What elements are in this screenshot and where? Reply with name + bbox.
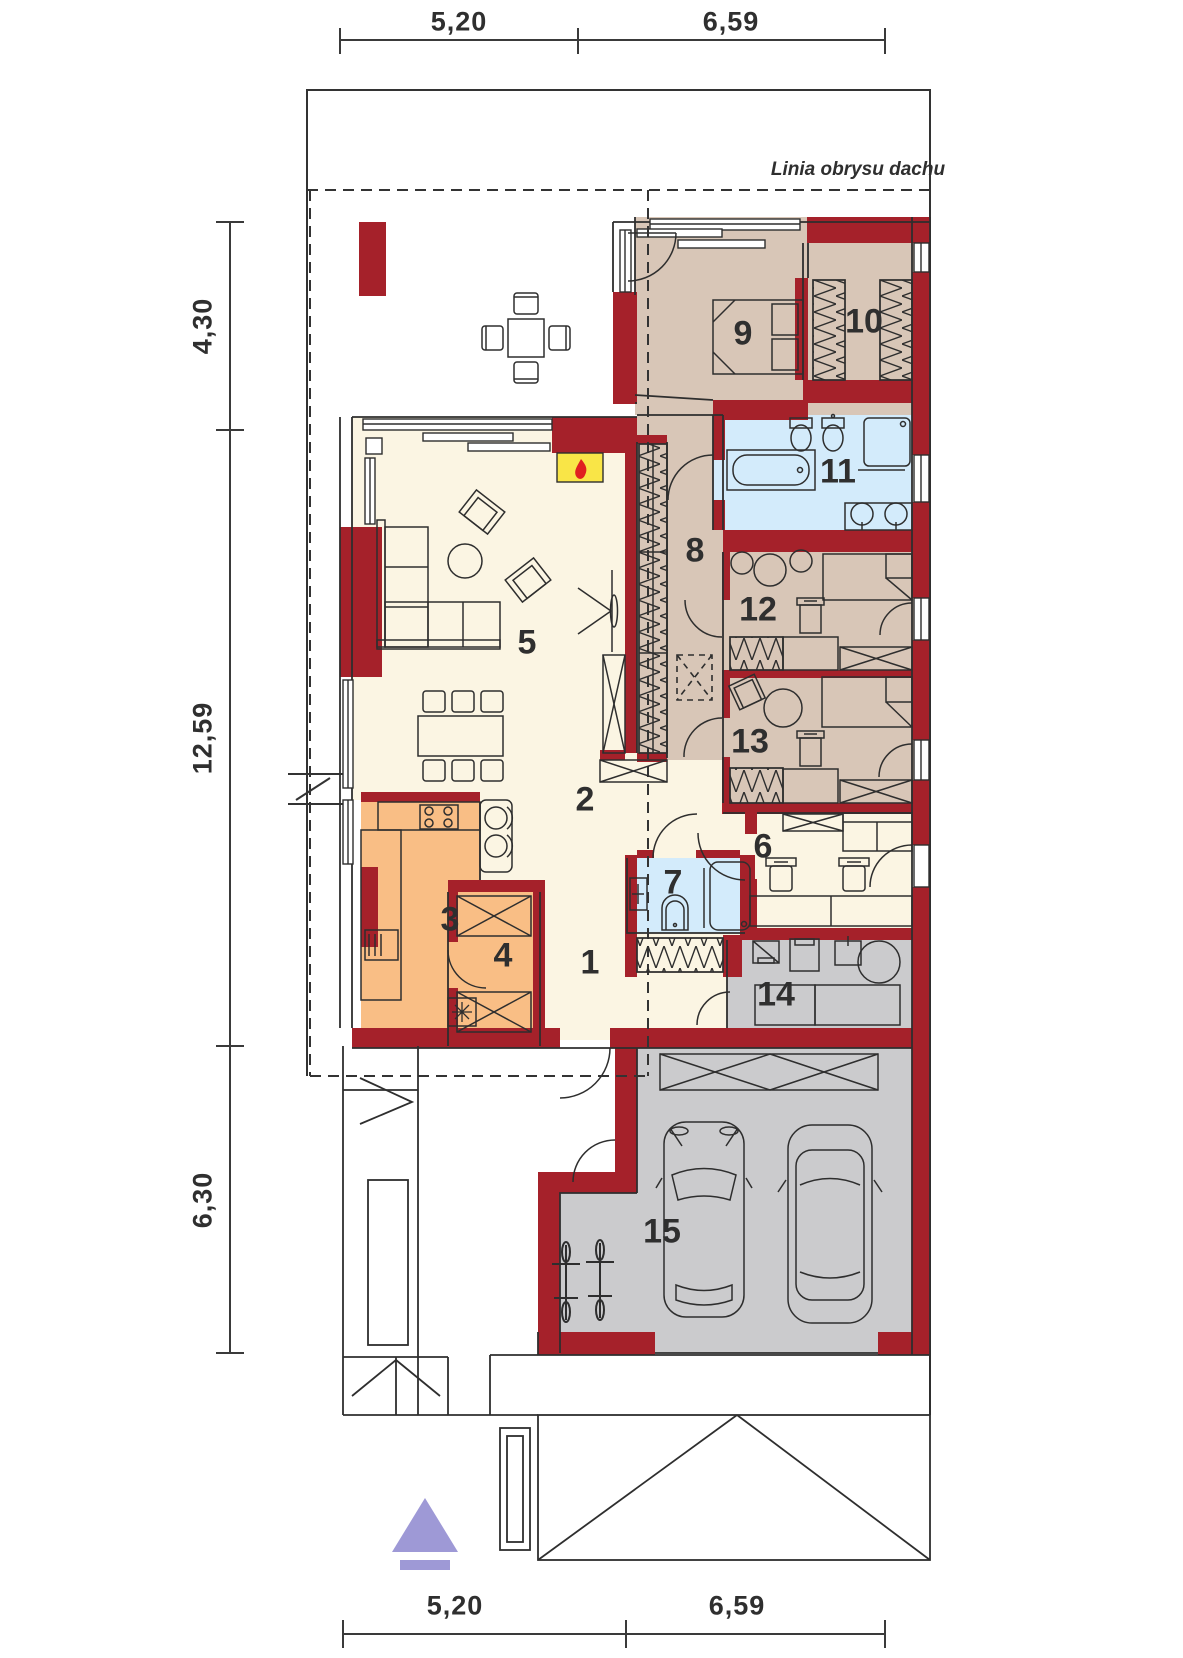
wardrobe-room12: [730, 637, 783, 670]
room-label-12-bedroom: 12: [739, 591, 777, 630]
room-label-11-bathroom: 11: [820, 453, 856, 492]
room-label-1-entry: 1: [581, 944, 600, 983]
window-kitchen-west: [343, 800, 353, 864]
room-label-5-living: 5: [518, 624, 537, 663]
room-label-3-kitchen: 3: [441, 901, 460, 940]
window-room12-east: [914, 598, 929, 640]
dim-top-2: 6,59: [703, 7, 760, 38]
floor-plan-page: 5,20 6,59 4,30 12,59 6,30 5,20 6,59 Lini…: [0, 0, 1183, 1658]
closet-entry1: [637, 938, 723, 972]
window-bath-east: [914, 455, 929, 502]
room-label-13-bedroom: 13: [731, 723, 769, 762]
window-wardrobe-east: [914, 243, 929, 272]
north-arrow-icon: [392, 1498, 458, 1570]
window-living-west1: [365, 458, 375, 524]
wardrobe-room10-right: [880, 280, 912, 380]
chimney: [500, 1428, 530, 1550]
room-label-9-bedroom: 9: [734, 315, 753, 354]
window-living-west2: [343, 680, 353, 788]
terrace-pillar: [359, 222, 386, 296]
room-label-2-hall: 2: [576, 781, 595, 820]
wardrobe-room13: [730, 768, 783, 803]
room-label-8-corridor: 8: [686, 532, 705, 571]
room-label-6-study: 6: [754, 828, 773, 867]
wardrobe-room10-left: [813, 280, 845, 380]
dim-left-2: 12,59: [188, 702, 219, 775]
dim-left-1: 4,30: [188, 298, 219, 355]
window-bedroom-west: [620, 230, 631, 292]
room-label-10-wardrobe: 10: [845, 303, 883, 342]
room-label-7-wc: 7: [664, 864, 683, 903]
room-label-15-garage: 15: [643, 1213, 681, 1252]
window-living-north: [363, 419, 552, 430]
room-label-14-utility: 14: [757, 976, 795, 1015]
fireplace: [557, 453, 603, 482]
dim-top-1: 5,20: [431, 7, 488, 38]
planter: [368, 1180, 408, 1345]
floor-plan-drawing: [0, 0, 1183, 1658]
door-room6-garden: [914, 845, 929, 887]
dim-left-3: 6,30: [188, 1172, 219, 1229]
roof-line-label: Linia obrysu dachu: [771, 159, 945, 181]
terrace-table-set: [482, 293, 570, 383]
dim-bottom-1: 5,20: [427, 1591, 484, 1622]
gate-arrow: [360, 1078, 412, 1124]
room-label-4-pantry: 4: [494, 937, 513, 976]
door-front: [560, 1048, 610, 1098]
dim-bottom-2: 6,59: [709, 1591, 766, 1622]
wardrobe-corridor8: [639, 444, 667, 753]
window-room13-east: [914, 740, 929, 780]
